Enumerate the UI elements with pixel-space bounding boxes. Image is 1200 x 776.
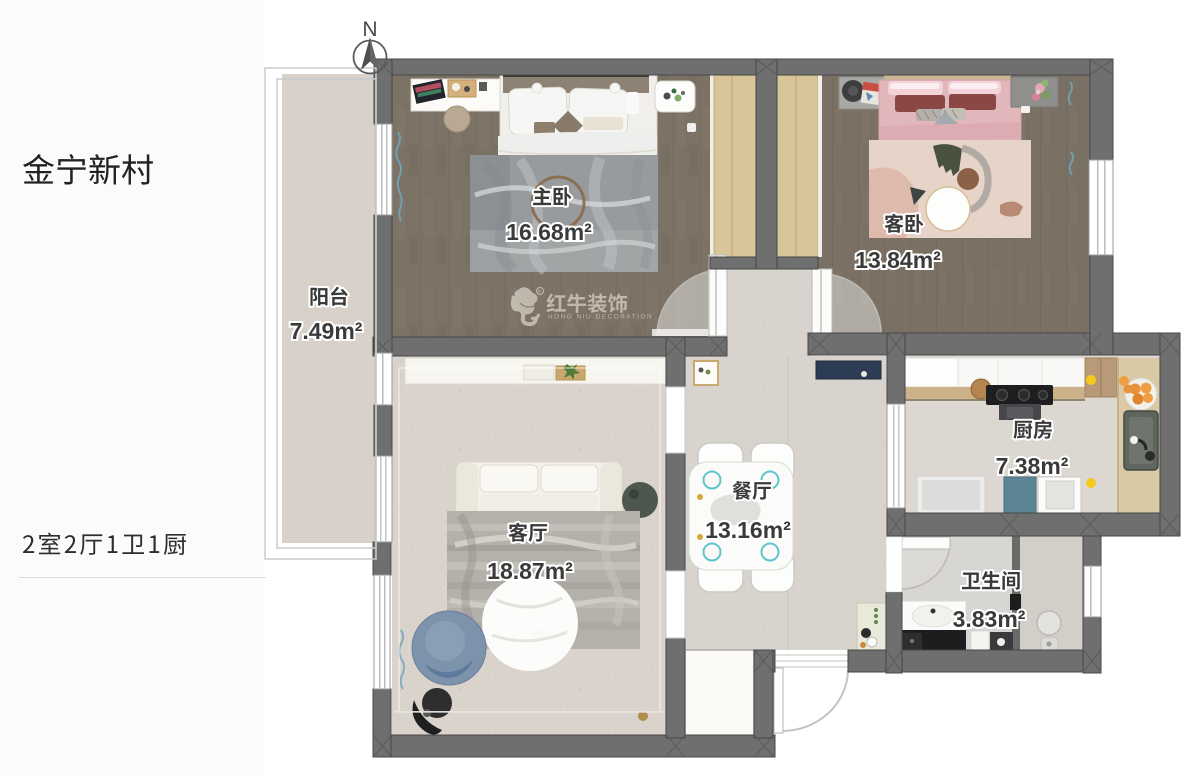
svg-text:16.68m²: 16.68m² xyxy=(506,219,592,245)
svg-text:7.49m²: 7.49m² xyxy=(290,318,363,344)
svg-text:13.16m²: 13.16m² xyxy=(705,517,791,543)
svg-text:HONG NIU DECORATION: HONG NIU DECORATION xyxy=(548,314,653,321)
svg-text:18.87m²: 18.87m² xyxy=(487,558,573,584)
svg-text:3.83m²: 3.83m² xyxy=(953,606,1026,632)
svg-text:7.38m²: 7.38m² xyxy=(996,453,1069,479)
svg-text:13.84m²: 13.84m² xyxy=(855,247,941,273)
svg-text:R: R xyxy=(538,290,542,296)
